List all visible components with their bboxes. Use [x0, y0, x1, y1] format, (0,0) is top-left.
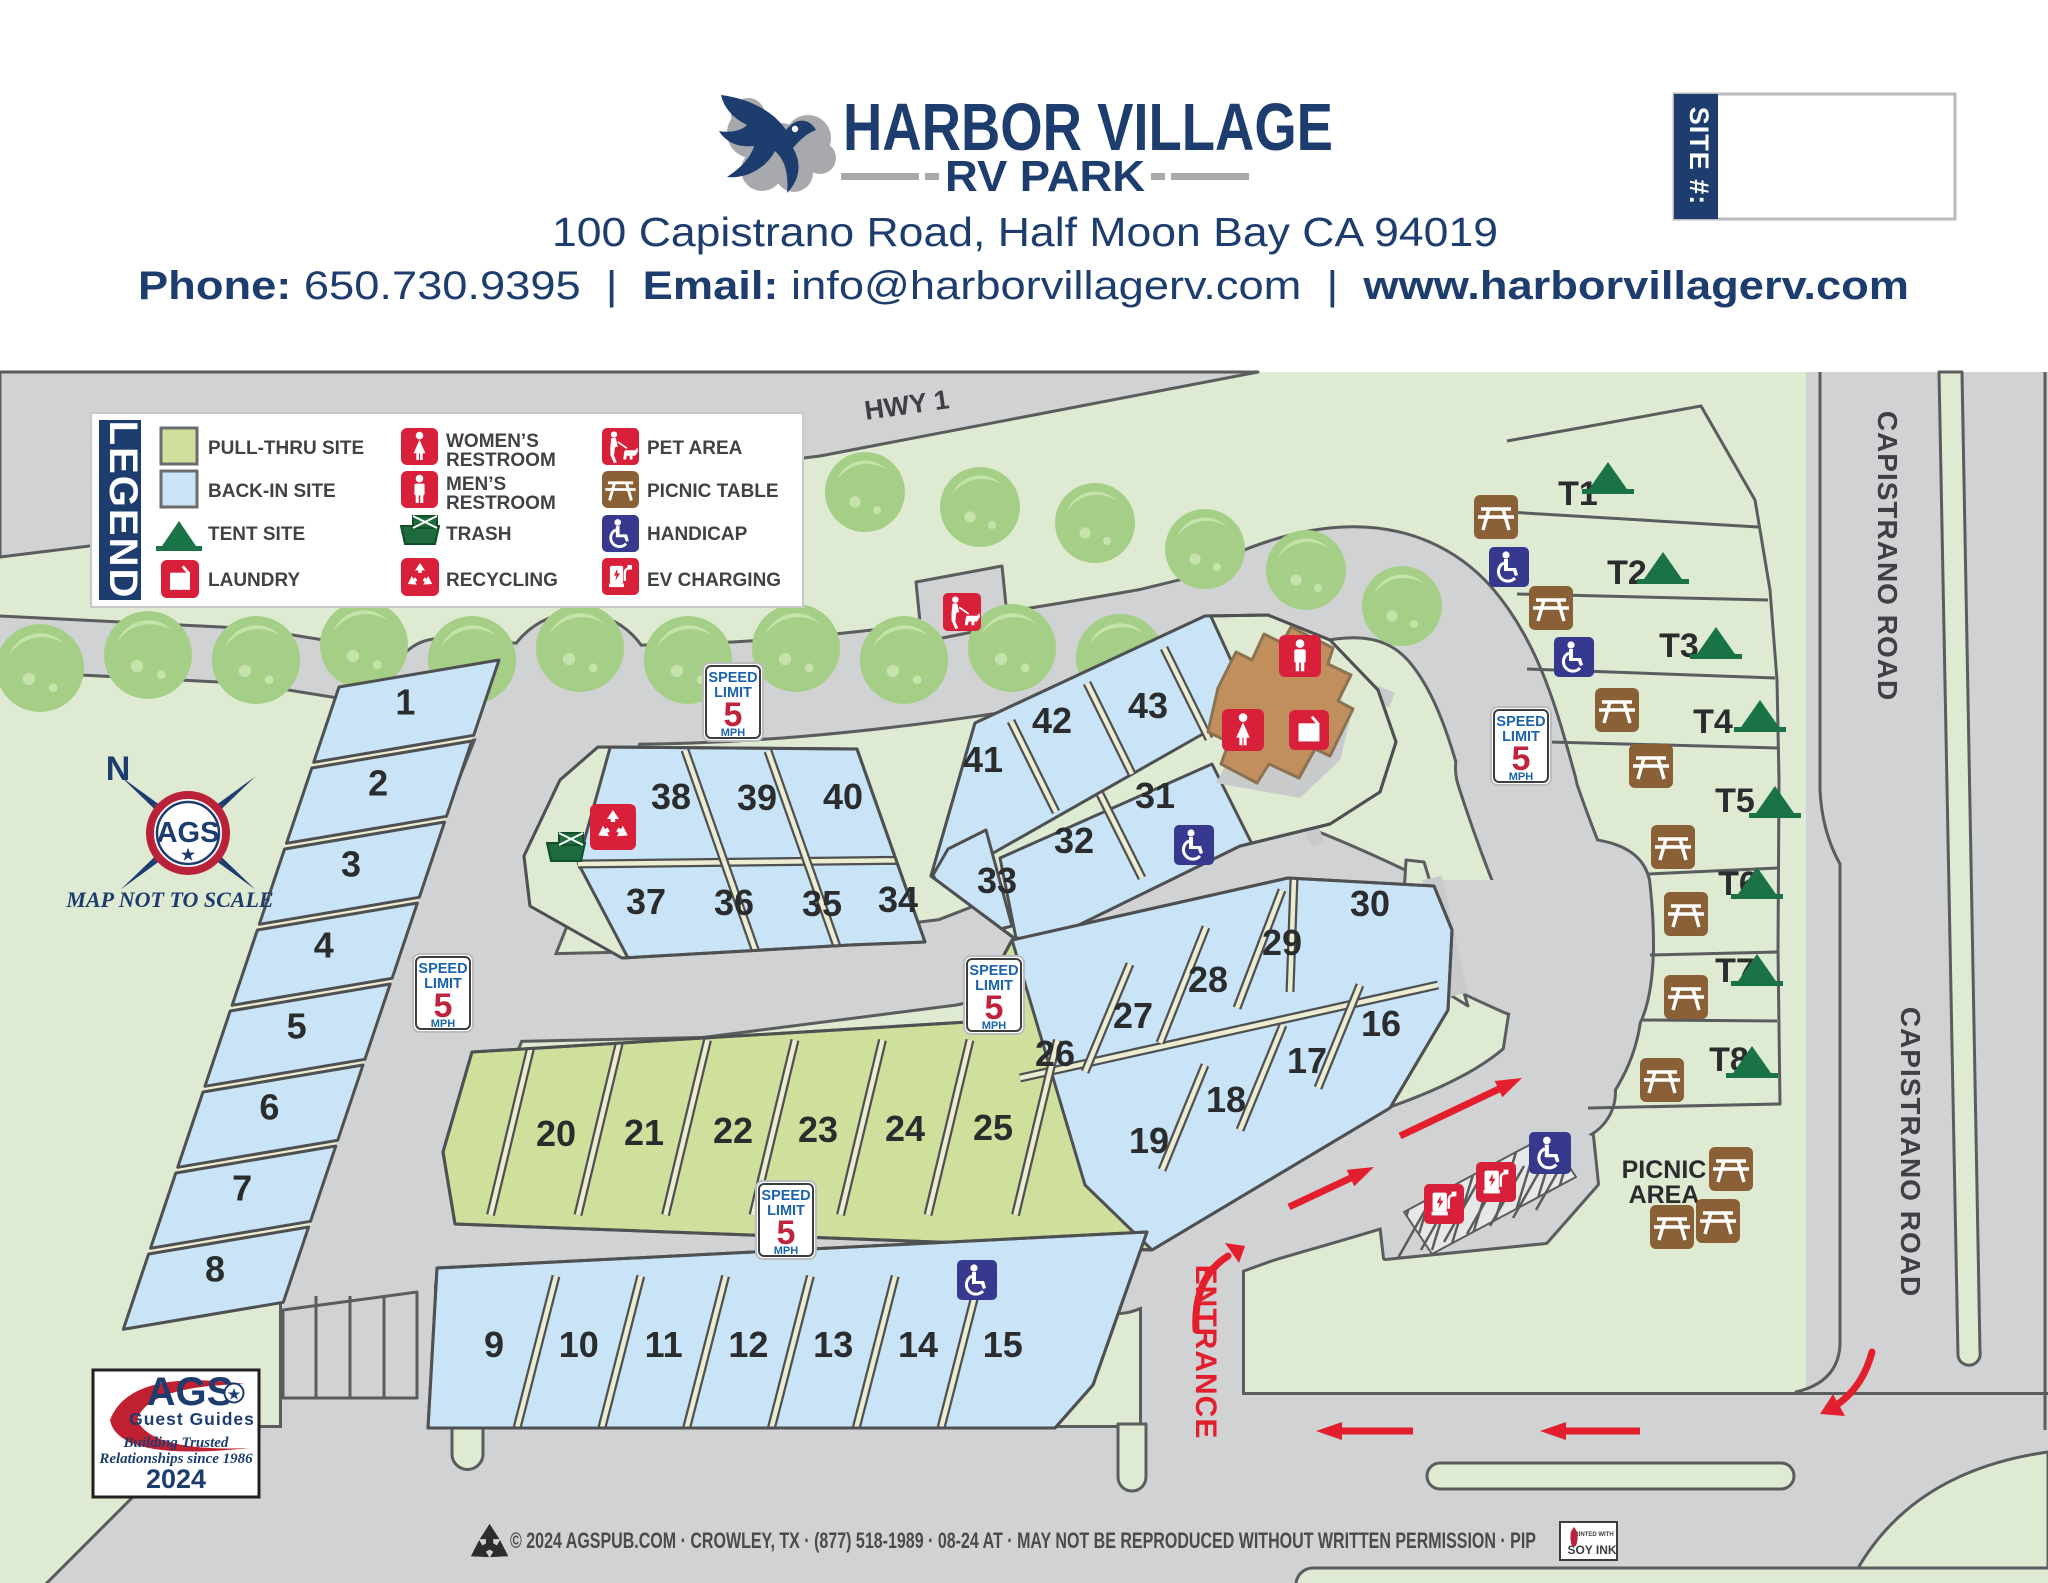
svg-text:2: 2 — [368, 763, 388, 804]
svg-text:39: 39 — [737, 777, 777, 818]
svg-text:38: 38 — [651, 776, 691, 817]
svg-text:17: 17 — [1287, 1040, 1327, 1081]
svg-text:34: 34 — [878, 879, 918, 920]
svg-text:31: 31 — [1135, 775, 1175, 816]
svg-text:BACK-IN SITE: BACK-IN SITE — [208, 481, 336, 502]
svg-text:16: 16 — [1361, 1003, 1401, 1044]
svg-text:★: ★ — [228, 1386, 241, 1402]
svg-text:24: 24 — [885, 1108, 925, 1149]
svg-text:Guest Guides: Guest Guides — [129, 1409, 255, 1429]
svg-text:T3: T3 — [1659, 627, 1699, 665]
svg-text:37: 37 — [626, 881, 666, 922]
svg-text:PICNIC TABLE: PICNIC TABLE — [647, 481, 779, 502]
svg-text:12: 12 — [728, 1324, 768, 1365]
svg-text:AREA: AREA — [1629, 1181, 1700, 1209]
svg-text:WOMEN’S: WOMEN’S — [446, 431, 539, 452]
svg-text:18: 18 — [1206, 1079, 1246, 1120]
svg-text:MEN’S: MEN’S — [446, 474, 506, 495]
svg-text:35: 35 — [802, 883, 842, 924]
svg-text:MAP NOT TO SCALE: MAP NOT TO SCALE — [65, 887, 273, 912]
svg-text:AGS: AGS — [157, 817, 220, 849]
svg-text:MPH: MPH — [1509, 771, 1534, 783]
svg-text:RESTROOM: RESTROOM — [446, 493, 556, 514]
svg-text:SPEED: SPEED — [761, 1188, 810, 1204]
svg-text:20: 20 — [536, 1113, 576, 1154]
svg-text:LEGEND: LEGEND — [101, 421, 145, 600]
svg-text:22: 22 — [713, 1110, 753, 1151]
svg-text:T4: T4 — [1693, 703, 1733, 741]
svg-text:AGS: AGS — [147, 1370, 234, 1414]
svg-text:SPEED: SPEED — [969, 963, 1018, 979]
svg-text:29: 29 — [1262, 922, 1302, 963]
svg-text:★: ★ — [181, 847, 196, 864]
svg-text:3: 3 — [341, 844, 361, 885]
svg-text:25: 25 — [973, 1107, 1013, 1148]
svg-text:CAPISTRANO ROAD: CAPISTRANO ROAD — [1895, 1007, 1926, 1297]
svg-text:21: 21 — [624, 1112, 664, 1153]
svg-text:7: 7 — [232, 1168, 252, 1209]
svg-text:N: N — [106, 750, 131, 788]
svg-text:30: 30 — [1350, 883, 1390, 924]
svg-text:23: 23 — [798, 1109, 838, 1150]
svg-text:© 2024 AGSPUB.COM · CROWLEY, T: © 2024 AGSPUB.COM · CROWLEY, TX · (877) … — [510, 1528, 1536, 1553]
svg-text:26: 26 — [1035, 1033, 1075, 1074]
svg-text:EV CHARGING: EV CHARGING — [647, 570, 781, 591]
svg-text:28: 28 — [1188, 959, 1228, 1000]
svg-text:T2: T2 — [1607, 554, 1647, 592]
svg-text:ENTRANCE: ENTRANCE — [1189, 1265, 1222, 1440]
svg-text:33: 33 — [977, 860, 1017, 901]
svg-text:SPEED: SPEED — [1496, 714, 1545, 730]
svg-text:100 Capistrano Road, Half Moon: 100 Capistrano Road, Half Moon Bay CA 94… — [552, 209, 1498, 255]
svg-text:PULL-THRU SITE: PULL-THRU SITE — [208, 438, 364, 459]
svg-text:MPH: MPH — [721, 727, 746, 739]
svg-text:RV PARK: RV PARK — [945, 152, 1145, 201]
svg-text:41: 41 — [963, 739, 1003, 780]
svg-text:SITE #:: SITE #: — [1684, 107, 1714, 206]
svg-text:11: 11 — [645, 1324, 683, 1365]
svg-text:TENT SITE: TENT SITE — [208, 524, 305, 545]
svg-text:13: 13 — [813, 1324, 853, 1365]
svg-text:36: 36 — [714, 882, 754, 923]
svg-text:SPEED: SPEED — [418, 961, 467, 977]
svg-text:1: 1 — [395, 682, 415, 723]
svg-text:RECYCLING: RECYCLING — [446, 570, 558, 591]
svg-text:SPEED: SPEED — [708, 670, 757, 686]
svg-text:PICNIC: PICNIC — [1622, 1156, 1707, 1184]
svg-text:42: 42 — [1032, 700, 1072, 741]
svg-text:10: 10 — [559, 1324, 599, 1365]
svg-text:2024: 2024 — [146, 1464, 206, 1494]
svg-text:MPH: MPH — [774, 1245, 799, 1257]
svg-text:4: 4 — [314, 925, 334, 966]
svg-text:8: 8 — [205, 1249, 225, 1290]
svg-text:CAPISTRANO ROAD: CAPISTRANO ROAD — [1872, 411, 1903, 701]
svg-text:MPH: MPH — [431, 1018, 456, 1030]
svg-text:43: 43 — [1128, 685, 1168, 726]
svg-text:9: 9 — [484, 1324, 504, 1365]
svg-text:Building Trusted: Building Trusted — [123, 1435, 229, 1451]
svg-text:5: 5 — [287, 1006, 307, 1047]
svg-text:6: 6 — [259, 1087, 279, 1128]
svg-text:MPH: MPH — [982, 1020, 1007, 1032]
svg-text:RESTROOM: RESTROOM — [446, 450, 556, 471]
svg-text:15: 15 — [983, 1324, 1023, 1365]
svg-text:PET AREA: PET AREA — [647, 438, 743, 459]
svg-text:27: 27 — [1113, 995, 1153, 1036]
svg-text:19: 19 — [1129, 1120, 1169, 1161]
svg-text:32: 32 — [1054, 820, 1094, 861]
svg-text:40: 40 — [823, 776, 863, 817]
svg-text:HANDICAP: HANDICAP — [647, 524, 748, 545]
svg-text:14: 14 — [898, 1324, 938, 1365]
svg-text:T5: T5 — [1715, 782, 1755, 820]
svg-text:TRASH: TRASH — [446, 524, 511, 545]
svg-text:LAUNDRY: LAUNDRY — [208, 570, 301, 591]
svg-text:Phone: 650.730.9395 | Email:: Phone: 650.730.9395 | Email: info@harbor… — [138, 264, 1909, 308]
